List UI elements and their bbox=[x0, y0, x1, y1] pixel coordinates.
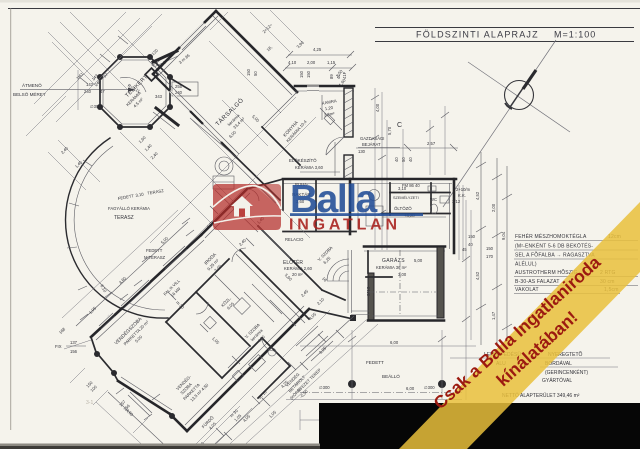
svg-text:GARÁZS: GARÁZS bbox=[382, 257, 405, 264]
svg-text:(M²-ENKÉNT 5-6 DB BEKÖTÉS-: (M²-ENKÉNT 5-6 DB BEKÖTÉS- bbox=[515, 243, 593, 250]
svg-text:INGATLAN: INGATLAN bbox=[289, 217, 401, 234]
svg-text:3213: 3213 bbox=[366, 286, 371, 296]
svg-text:SZEMÉLYZETI: SZEMÉLYZETI bbox=[393, 195, 419, 200]
svg-text:ELÕKÉSZÍTÕ: ELÕKÉSZÍTÕ bbox=[289, 158, 317, 163]
svg-text:343: 343 bbox=[155, 94, 163, 99]
svg-text:FEHÉR MÉSZHOMOKTÉGLA: FEHÉR MÉSZHOMOKTÉGLA bbox=[515, 233, 587, 240]
svg-text:KERÁMIA 3,60: KERÁMIA 3,60 bbox=[295, 165, 324, 170]
svg-text:4,00: 4,00 bbox=[375, 103, 380, 112]
svg-text:B-30-AS FALAZAT: B-30-AS FALAZAT bbox=[515, 279, 560, 285]
svg-text:FAGYÁLLÓ KERÁMIA: FAGYÁLLÓ KERÁMIA bbox=[108, 206, 150, 211]
svg-text:89: 89 bbox=[329, 74, 334, 79]
svg-text:3,10: 3,10 bbox=[398, 186, 407, 191]
svg-text:M=1:100: M=1:100 bbox=[554, 30, 596, 40]
svg-text:240: 240 bbox=[84, 89, 92, 94]
svg-text:FEDETT: FEDETT bbox=[366, 360, 384, 365]
svg-text:40: 40 bbox=[408, 157, 413, 162]
svg-text:FÖLDSZINTI ALAPRAJZ: FÖLDSZINTI ALAPRAJZ bbox=[416, 30, 539, 40]
svg-text:150: 150 bbox=[299, 70, 304, 78]
svg-text:BELSÕ MÉRET: BELSÕ MÉRET bbox=[13, 91, 46, 97]
svg-text:45: 45 bbox=[462, 247, 467, 252]
svg-text:K.K.: K.K. bbox=[458, 193, 466, 198]
svg-text:41F: 41F bbox=[342, 71, 347, 79]
svg-text:50: 50 bbox=[253, 71, 258, 76]
svg-text:M TERASZ: M TERASZ bbox=[144, 255, 166, 260]
svg-text:1,15: 1,15 bbox=[327, 60, 336, 65]
svg-text:1,47: 1,47 bbox=[491, 311, 496, 320]
svg-text:3/12: 3/12 bbox=[452, 199, 461, 204]
svg-text:5,70: 5,70 bbox=[387, 126, 392, 135]
svg-text:ELÕTÉR: ELÕTÉR bbox=[283, 259, 303, 266]
svg-text:BEJÁRAT: BEJÁRAT bbox=[362, 142, 381, 147]
svg-text:GAZDASÁGI: GAZDASÁGI bbox=[360, 136, 384, 141]
svg-text:9,04: 9,04 bbox=[501, 231, 506, 240]
svg-text:GYÁRTÓVAL: GYÁRTÓVAL bbox=[542, 377, 572, 384]
svg-text:4,52: 4,52 bbox=[475, 191, 480, 200]
svg-text:20 m²: 20 m² bbox=[292, 272, 303, 277]
svg-text:6,00: 6,00 bbox=[390, 340, 399, 345]
svg-text:KERÁMIA 2,60: KERÁMIA 2,60 bbox=[284, 266, 313, 271]
svg-text:4,52: 4,52 bbox=[475, 271, 480, 280]
svg-text:143: 143 bbox=[86, 82, 94, 87]
svg-text:6,00: 6,00 bbox=[406, 386, 415, 391]
svg-text:170: 170 bbox=[486, 254, 494, 259]
svg-text:(GERINCENKÉNT): (GERINCENKÉNT) bbox=[545, 369, 588, 376]
svg-text:130: 130 bbox=[358, 149, 366, 154]
svg-text:150: 150 bbox=[486, 246, 494, 251]
svg-text:4,25: 4,25 bbox=[313, 47, 322, 52]
svg-text:ALÉLUL): ALÉLUL) bbox=[515, 261, 537, 268]
svg-text:156: 156 bbox=[70, 349, 78, 354]
svg-text:VAKOLAT: VAKOLAT bbox=[515, 287, 539, 293]
svg-text:FIX: FIX bbox=[55, 344, 62, 349]
svg-text:WC: WC bbox=[430, 197, 437, 202]
svg-text:4,10: 4,10 bbox=[288, 60, 297, 65]
svg-text:BEÁLLÓ: BEÁLLÓ bbox=[382, 373, 400, 379]
svg-text:3,00: 3,00 bbox=[398, 272, 407, 277]
svg-text:5,00: 5,00 bbox=[414, 258, 423, 263]
svg-text:FEDETT: FEDETT bbox=[146, 248, 163, 253]
svg-text:2,57: 2,57 bbox=[427, 141, 436, 146]
svg-text:C: C bbox=[397, 122, 402, 129]
svg-text:∅300: ∅300 bbox=[424, 385, 435, 390]
svg-text:TERASZ: TERASZ bbox=[114, 215, 134, 221]
svg-text:2,00: 2,00 bbox=[491, 203, 496, 212]
svg-text:KERÁMIA 36 m²: KERÁMIA 36 m² bbox=[376, 265, 407, 270]
svg-text:50: 50 bbox=[401, 157, 406, 162]
svg-text:150: 150 bbox=[306, 70, 311, 78]
svg-text:150: 150 bbox=[246, 68, 251, 76]
svg-text:RELACIO: RELACIO bbox=[285, 237, 304, 242]
svg-text:ÁTMENÕ: ÁTMENÕ bbox=[22, 82, 42, 88]
svg-text:2+10/m: 2+10/m bbox=[456, 187, 471, 192]
svg-text:42: 42 bbox=[336, 74, 341, 79]
svg-text:40: 40 bbox=[468, 242, 473, 247]
svg-text:SEL A FÕFALBA → RAGASZTVA: SEL A FÕFALBA → RAGASZTVA bbox=[515, 252, 595, 259]
svg-text:2,00: 2,00 bbox=[307, 60, 316, 65]
svg-text:3-1: 3-1 bbox=[86, 400, 93, 406]
svg-text:150: 150 bbox=[468, 234, 476, 239]
svg-text:ÖLTÖZÕ: ÖLTÖZÕ bbox=[394, 206, 412, 211]
svg-text:137: 137 bbox=[70, 340, 78, 345]
svg-text:40: 40 bbox=[394, 157, 399, 162]
svg-text:∅300: ∅300 bbox=[319, 385, 330, 390]
